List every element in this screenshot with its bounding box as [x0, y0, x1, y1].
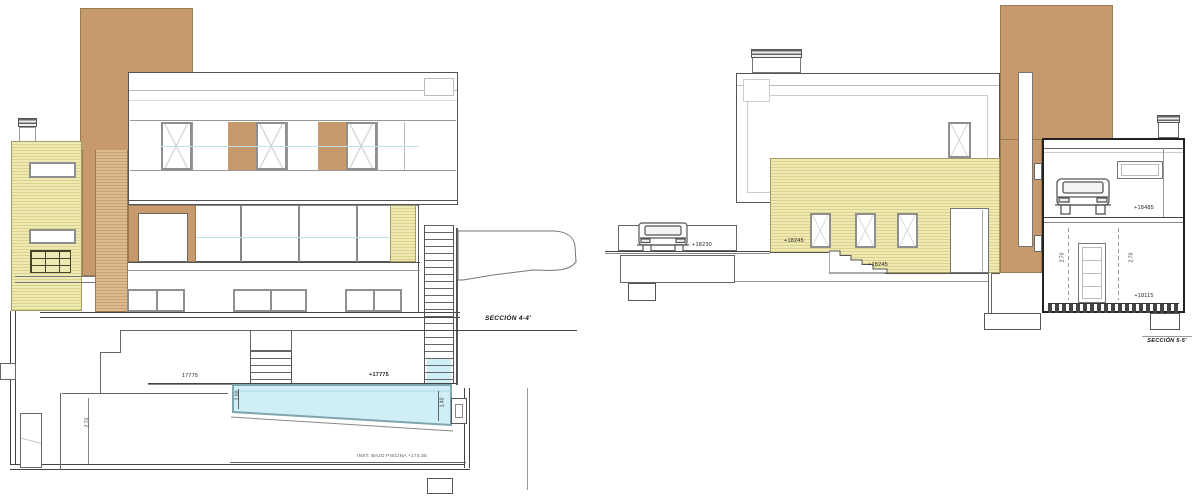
roof-box: [743, 79, 770, 102]
upper-window: [948, 122, 971, 158]
section-5-5-drawing: +18230 +18245 +18245: [0, 0, 1192, 496]
section-title-right: SECCIÓN 5-5': [1142, 339, 1192, 345]
garage-chimney-cap: [1157, 115, 1180, 123]
roof-chimney-cap: [751, 49, 802, 58]
foundation-footing: [984, 313, 1041, 330]
garden-door: [950, 208, 989, 273]
garage-clerestory-inner: [1121, 164, 1159, 176]
beam-end: [1034, 235, 1042, 252]
garden-window: [855, 213, 876, 248]
stairs-level-label: +18245: [860, 263, 896, 269]
section-title-underline: [1142, 336, 1192, 337]
terrace-ground: [770, 252, 829, 273]
foundation-footing: [1150, 313, 1180, 330]
entry-level-label: +18115: [1124, 294, 1164, 300]
dim-line-entry-left: [1068, 228, 1069, 300]
garden-window: [810, 213, 831, 248]
brown-tower: [1000, 5, 1113, 140]
garden-door-frame: [982, 210, 983, 271]
dim-line-entry-right: [1118, 228, 1119, 300]
drawing-canvas: 2.70 17775 1.00 1.40 +17775 INST. BAJO P…: [0, 0, 1192, 496]
car-rear-icon: [633, 213, 693, 255]
car-rear-icon: [1052, 167, 1114, 217]
garage-floor-line: [1044, 222, 1183, 223]
buried-structure: [620, 255, 735, 283]
garden-window: [897, 213, 918, 248]
slot-window: [1018, 72, 1033, 247]
foundation-line: [735, 281, 990, 282]
roof-chimney: [752, 57, 801, 73]
driveway-level-label: +18230: [682, 243, 722, 249]
garage-floor-line: [1044, 217, 1183, 218]
dim-garage-height-left: 2.70: [1061, 247, 1066, 269]
foundation-footing: [628, 283, 656, 301]
garage-chimney: [1158, 122, 1179, 138]
dim-garage-height-right: 2.70: [1130, 247, 1135, 269]
wall-below-ground: [988, 273, 992, 313]
entry-sill-hatch: [1048, 303, 1179, 313]
beam-end: [1034, 163, 1042, 180]
parapet-line: [737, 85, 999, 86]
entry-door-panels: [1082, 247, 1102, 299]
terrace-level-label: +18245: [776, 239, 812, 245]
garage-level-label: +18485: [1124, 206, 1164, 212]
